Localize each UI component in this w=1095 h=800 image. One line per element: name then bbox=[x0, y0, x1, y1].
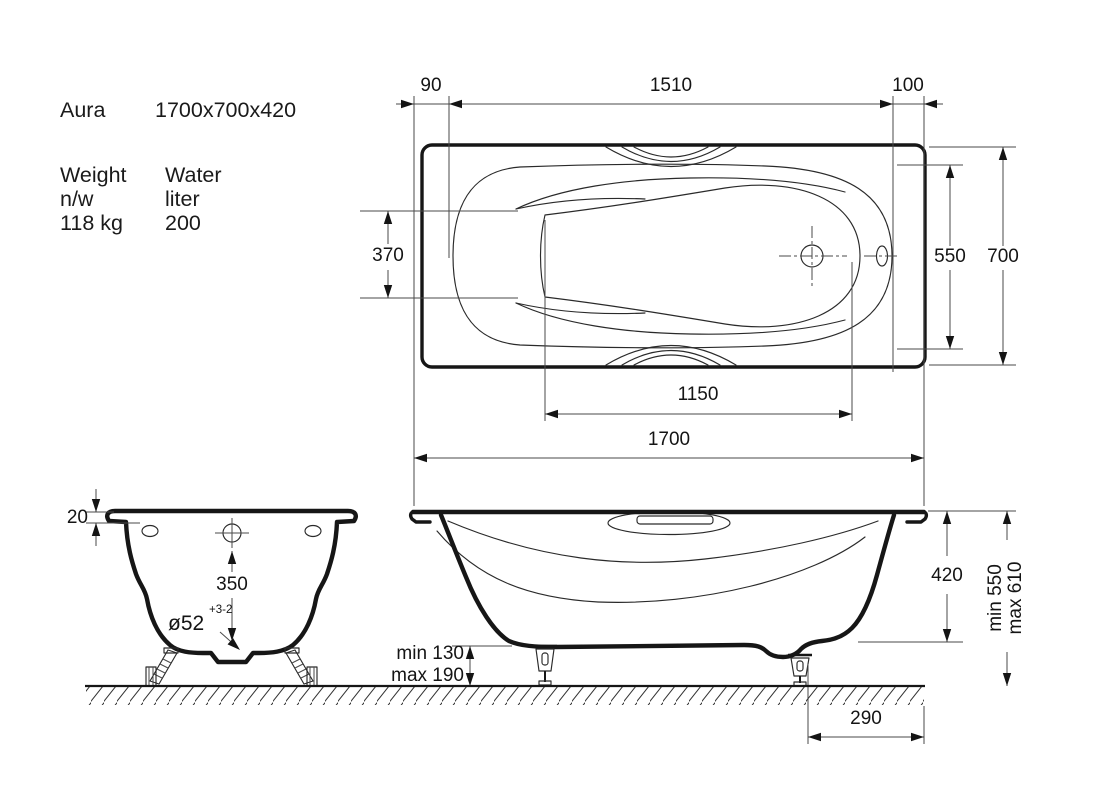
dim-offset-left: 90 bbox=[420, 75, 441, 96]
technical-drawing-bathtub: Aura 1700x700x420 Weight Water n/w liter… bbox=[0, 0, 1095, 800]
side-view-shell bbox=[441, 515, 894, 657]
side-view-leg-left bbox=[533, 646, 557, 685]
dim-rim-length: 1510 bbox=[650, 75, 692, 96]
dim-feet-min: min 130 bbox=[396, 643, 464, 664]
dim-drain-diameter: ø52 bbox=[168, 612, 204, 635]
dim-basin-length: 1150 bbox=[678, 384, 719, 405]
dim-height-min: min 550 bbox=[985, 564, 1006, 632]
dim-overall-length: 1700 bbox=[648, 429, 690, 450]
side-view-contour-2 bbox=[437, 531, 865, 602]
dim-rim-height: 20 bbox=[67, 507, 88, 528]
drain-hole bbox=[779, 226, 847, 286]
top-view-grip-arcs bbox=[606, 147, 736, 365]
end-view-leg-left bbox=[146, 648, 178, 686]
dim-feet-max: max 190 bbox=[391, 665, 464, 686]
dim-drain-tolerance: +3-2 bbox=[209, 604, 232, 616]
fixing-hole-right bbox=[305, 526, 321, 537]
overflow-hole bbox=[864, 246, 900, 266]
overflow-marker bbox=[215, 518, 249, 548]
dim-height-max: max 610 bbox=[1005, 562, 1026, 635]
dim-drain-offset: 290 bbox=[850, 708, 882, 729]
dim-shell-depth: 420 bbox=[931, 565, 963, 586]
drawing: 90 1510 100 370 550 700 bbox=[0, 0, 1095, 800]
end-view-leg-right bbox=[285, 648, 317, 686]
handle-recess bbox=[608, 512, 730, 535]
ground bbox=[85, 686, 925, 705]
dim-overall-width: 700 bbox=[987, 246, 1019, 267]
side-view-contour-1 bbox=[448, 521, 878, 562]
dim-offset-right: 100 bbox=[892, 75, 924, 96]
side-view bbox=[411, 512, 927, 687]
dim-width-back-end: 550 bbox=[934, 246, 966, 267]
dim-width-foot-end: 370 bbox=[372, 245, 404, 266]
top-view bbox=[422, 145, 925, 367]
ground-hatching bbox=[86, 687, 924, 705]
dim-drain-depth: 350 bbox=[216, 574, 248, 595]
fixing-hole-left bbox=[142, 526, 158, 537]
